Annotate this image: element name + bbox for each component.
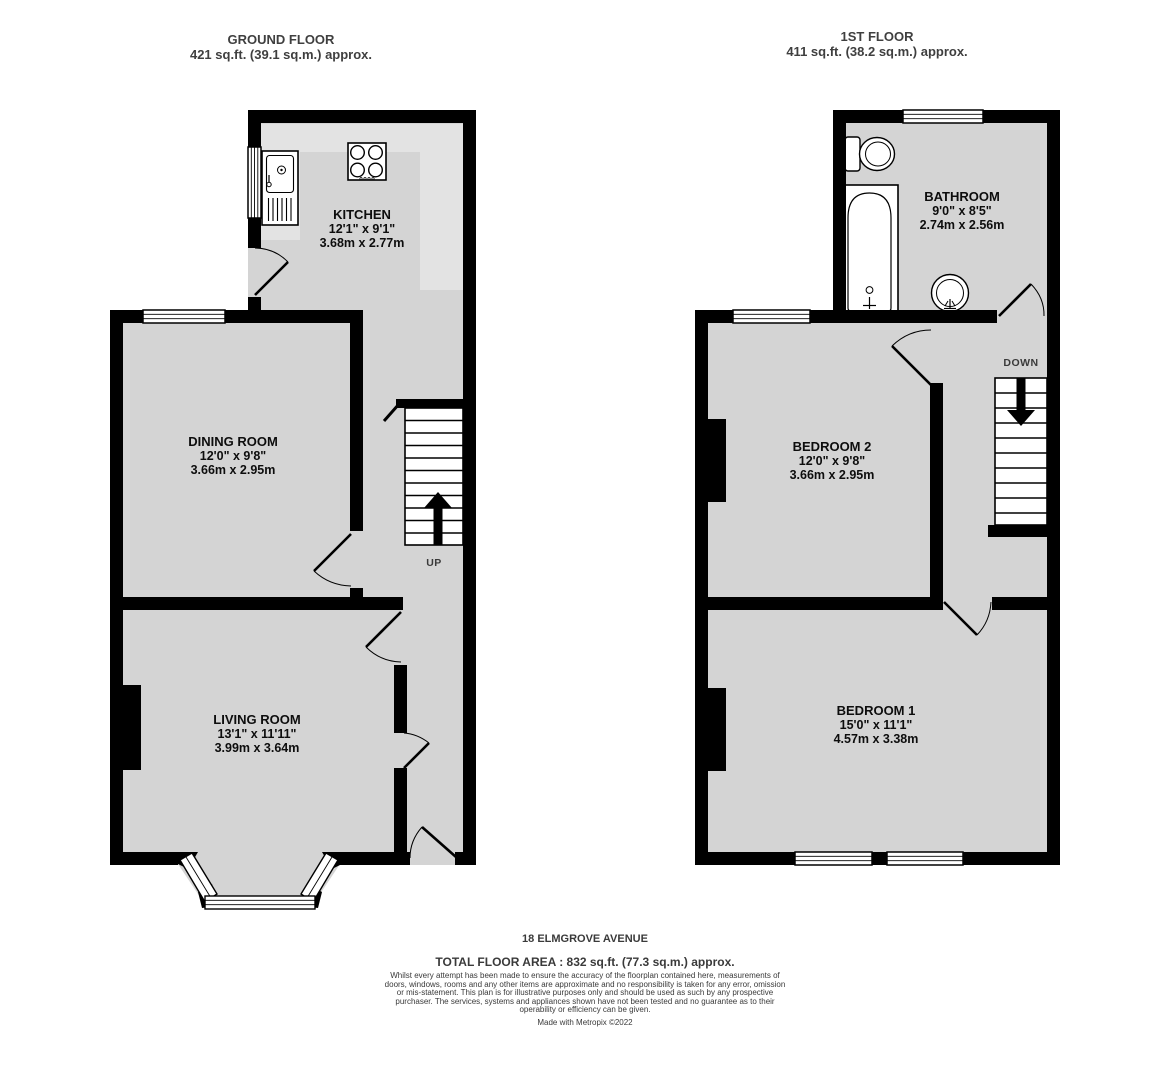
- svg-text:KITCHEN: KITCHEN: [333, 207, 391, 222]
- svg-text:LIVING ROOM: LIVING ROOM: [213, 712, 300, 727]
- chimney-breast: [708, 419, 726, 502]
- floorplan-page: GROUND FLOOR 421 sq.ft. (39.1 sq.m.) app…: [0, 0, 1170, 1080]
- chimney-breast: [123, 685, 141, 770]
- chimney-breast: [708, 688, 726, 771]
- svg-text:9'0" x 8'5": 9'0" x 8'5": [932, 204, 992, 218]
- ground-floor-area: 421 sq.ft. (39.1 sq.m.) approx.: [190, 47, 372, 62]
- svg-text:2.74m x 2.56m: 2.74m x 2.56m: [920, 218, 1005, 232]
- svg-text:12'0" x 9'8": 12'0" x 9'8": [799, 454, 866, 468]
- bedroom-2-window: [733, 310, 810, 323]
- disclaimer-text: Whilst every attempt has been made to en…: [383, 972, 787, 1015]
- toilet-icon: [845, 137, 895, 171]
- total-floor-area: TOTAL FLOOR AREA : 832 sq.ft. (77.3 sq.m…: [0, 955, 1170, 969]
- bathroom-window: [903, 110, 983, 123]
- living-room-label: LIVING ROOM 13'1" x 11'11" 3.99m x 3.64m: [213, 712, 300, 755]
- stove-icon: [348, 143, 386, 180]
- svg-text:12'1" x 9'1": 12'1" x 9'1": [329, 222, 396, 236]
- svg-text:3.68m x 2.77m: 3.68m x 2.77m: [320, 236, 405, 250]
- first-floor-area: 411 sq.ft. (38.2 sq.m.) approx.: [786, 44, 967, 59]
- first-floor-title: 1ST FLOOR: [841, 29, 915, 44]
- bathroom-label: BATHROOM 9'0" x 8'5" 2.74m x 2.56m: [920, 189, 1005, 232]
- staircase-down: [995, 378, 1047, 525]
- stairs-top-edge: [396, 399, 463, 408]
- staircase-up: [405, 408, 463, 545]
- down-label: DOWN: [1003, 357, 1038, 369]
- svg-text:BATHROOM: BATHROOM: [924, 189, 1000, 204]
- ground-floor-plan: GROUND FLOOR 421 sq.ft. (39.1 sq.m.) app…: [110, 32, 476, 909]
- bedroom-1-window: [887, 852, 963, 865]
- svg-text:15'0" x 11'1": 15'0" x 11'1": [840, 718, 913, 732]
- kitchen-window: [248, 147, 261, 218]
- bedroom-1-window: [795, 852, 872, 865]
- svg-text:12'0" x 9'8": 12'0" x 9'8": [200, 449, 267, 463]
- svg-text:3.99m x 3.64m: 3.99m x 3.64m: [215, 741, 300, 755]
- stairs-bottom-edge: [988, 525, 1047, 537]
- svg-text:BEDROOM 1: BEDROOM 1: [837, 703, 916, 718]
- first-floor-plan: 1ST FLOOR 411 sq.ft. (38.2 sq.m.) approx…: [695, 29, 1060, 865]
- up-label: UP: [426, 557, 442, 569]
- dining-room-window: [143, 310, 225, 323]
- bathtub-icon: [841, 185, 898, 313]
- metropix-credit: Made with Metropix ©2022: [0, 1018, 1170, 1027]
- svg-text:3.66m x 2.95m: 3.66m x 2.95m: [790, 468, 875, 482]
- ground-floor-title: GROUND FLOOR: [228, 32, 335, 47]
- svg-text:BEDROOM 2: BEDROOM 2: [793, 439, 872, 454]
- basin-icon: [932, 275, 969, 312]
- property-address: 18 ELMGROVE AVENUE: [0, 933, 1170, 945]
- svg-text:DINING ROOM: DINING ROOM: [188, 434, 278, 449]
- dining-room-label: DINING ROOM 12'0" x 9'8" 3.66m x 2.95m: [188, 434, 278, 477]
- svg-text:13'1" x 11'11": 13'1" x 11'11": [218, 727, 297, 741]
- bedroom-1-label: BEDROOM 1 15'0" x 11'1" 4.57m x 3.38m: [834, 703, 919, 746]
- svg-text:4.57m x 3.38m: 4.57m x 3.38m: [834, 732, 919, 746]
- bedroom-2-label: BEDROOM 2 12'0" x 9'8" 3.66m x 2.95m: [790, 439, 875, 482]
- svg-text:3.66m x 2.95m: 3.66m x 2.95m: [191, 463, 276, 477]
- floorplan-drawing: GROUND FLOOR 421 sq.ft. (39.1 sq.m.) app…: [0, 0, 1170, 1080]
- sink-unit-icon: [262, 151, 298, 225]
